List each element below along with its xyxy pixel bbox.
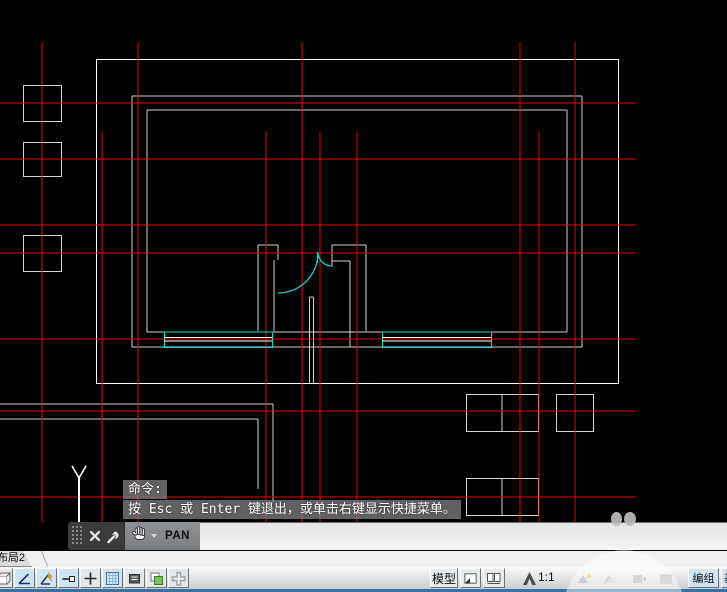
dyn-icon xyxy=(126,570,143,587)
door-swing-arc xyxy=(278,253,318,293)
paper-space-icon xyxy=(463,571,478,586)
window-symbol xyxy=(165,332,273,348)
tab-layout2[interactable]: 布局2 xyxy=(0,551,32,567)
statusbar-toggle-snap[interactable] xyxy=(0,568,13,588)
model-space-button[interactable]: 模型 xyxy=(430,568,458,588)
quick-view-layouts-button[interactable] xyxy=(483,568,505,588)
layout-tab-bar: 布局2 xyxy=(0,551,727,568)
lwt-icon xyxy=(148,570,165,587)
drag-handle[interactable] xyxy=(72,526,84,546)
otrack-icon xyxy=(82,570,99,587)
quick-view-icon xyxy=(486,571,502,585)
layout-button[interactable] xyxy=(460,568,481,588)
pan-hand-icon xyxy=(131,524,148,548)
snap-icon xyxy=(0,570,11,587)
group-button[interactable]: 编组 xyxy=(688,568,719,588)
active-command-label: PAN xyxy=(165,530,190,542)
statusbar-toggle-dyn[interactable] xyxy=(124,568,145,588)
wrench-icon[interactable] xyxy=(104,526,122,546)
chevron-down-icon[interactable] xyxy=(151,534,157,538)
command-input[interactable] xyxy=(200,522,727,550)
statusbar-disabled-icon-3[interactable] xyxy=(654,569,678,587)
ucs-icon xyxy=(72,466,79,478)
polar-icon xyxy=(38,570,55,587)
qp-icon xyxy=(170,570,187,587)
drawing-canvas[interactable] xyxy=(0,0,727,551)
statusbar-toggle-otrack[interactable] xyxy=(80,568,101,588)
statusbar-disabled-icon-2[interactable] xyxy=(627,569,651,587)
autocad-window: 命令: 按 Esc 或 Enter 键退出，或单击右键显示快捷菜单。 xyxy=(0,0,727,592)
command-prompt-line1: 命令: xyxy=(123,480,167,499)
ducs-icon xyxy=(104,570,121,587)
statusbar-toggle-lwt[interactable] xyxy=(146,568,167,588)
close-icon[interactable] xyxy=(86,526,104,546)
statusbar-toggle-osnap[interactable] xyxy=(58,568,79,588)
ucs-icon xyxy=(79,466,86,478)
statusbar-toggle-ducs[interactable] xyxy=(102,568,123,588)
command-window: PAN xyxy=(68,522,727,550)
active-tool-section[interactable]: PAN xyxy=(124,522,200,550)
watermark-paw-toe xyxy=(624,512,636,526)
window-symbol xyxy=(383,332,492,348)
annotation-scale-value[interactable]: 1:1 xyxy=(538,570,555,584)
statusbar-disabled-icon-0[interactable] xyxy=(572,569,596,587)
ortho-icon xyxy=(16,570,33,587)
watermark-paw-toe xyxy=(611,512,622,526)
statusbar-toggle-qp[interactable] xyxy=(168,568,189,588)
clipped-right-button[interactable]: 基 xyxy=(721,568,727,588)
statusbar-toggle-ortho[interactable] xyxy=(14,568,35,588)
status-bar: 模型 1:1 编组 基 xyxy=(0,567,727,592)
command-window-cap xyxy=(68,522,124,550)
statusbar-disabled-icon-1[interactable] xyxy=(598,569,622,587)
osnap-icon xyxy=(60,570,77,587)
command-prompt-line2: 按 Esc 或 Enter 键退出，或单击右键显示快捷菜单。 xyxy=(123,500,461,519)
statusbar-toggle-polar[interactable] xyxy=(36,568,57,588)
tab-separator xyxy=(31,551,48,566)
